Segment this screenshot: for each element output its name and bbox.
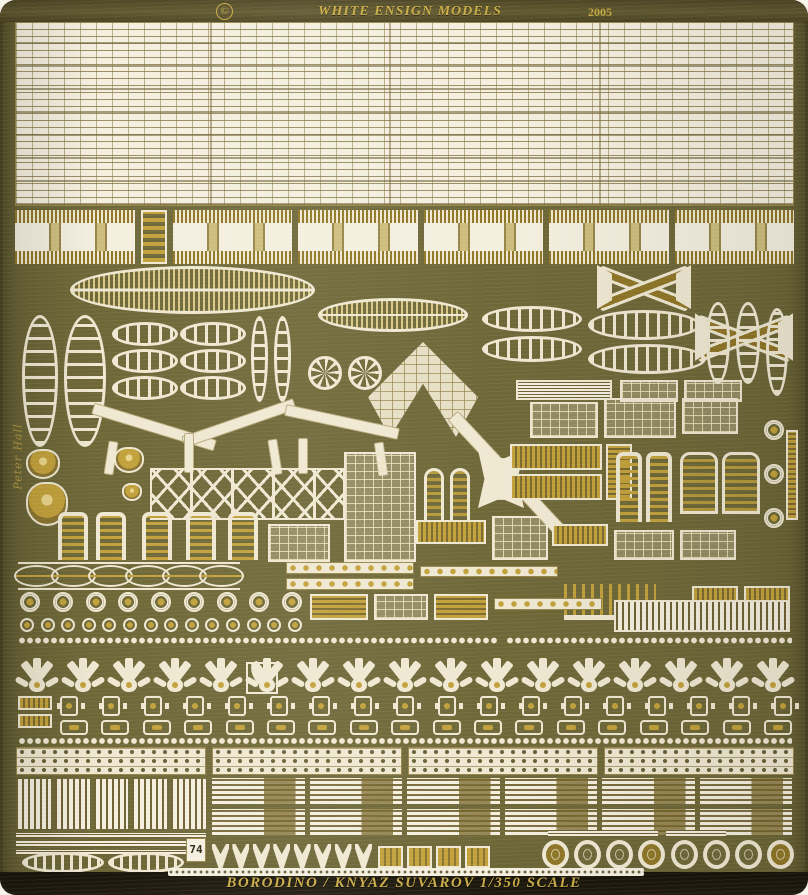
link-part (764, 720, 792, 735)
eyelet-part (288, 618, 302, 632)
bracket-part (232, 844, 249, 868)
link-part (350, 720, 378, 735)
boat-grating-part (112, 349, 178, 373)
rosette-part (249, 592, 269, 612)
clip-part (522, 696, 540, 716)
gold-cell-part (378, 846, 403, 868)
eagle-crest-part (122, 483, 142, 501)
vent-fan-part (384, 650, 426, 692)
walkway-bar (284, 404, 400, 440)
grid-panel-part (680, 530, 736, 560)
gold-ladder-part (616, 452, 642, 522)
link-part (267, 720, 295, 735)
year-label: 2005 (566, 5, 612, 20)
link-part (101, 720, 129, 735)
chain-strip-part (18, 737, 792, 745)
rosette-part (184, 592, 204, 612)
link-part (226, 720, 254, 735)
stanchion-panel-part (16, 779, 51, 829)
rosette-part (151, 592, 171, 612)
riveted-strip-part (420, 566, 558, 577)
clip-part (396, 696, 414, 716)
grating-panel-part (310, 778, 403, 804)
vent-fan-part (108, 650, 150, 692)
vent-fan-part (568, 650, 610, 692)
eyelet-part (267, 618, 281, 632)
boat-grating-part (482, 336, 582, 362)
ladder-strip-row (15, 210, 794, 264)
copyright-icon: © (216, 3, 233, 20)
boat-grating-part (22, 315, 58, 447)
boat-grating-part (251, 316, 268, 402)
vent-fan-part (522, 650, 564, 692)
part-number-block: 74 (186, 838, 206, 862)
gold-grating-part (510, 444, 602, 470)
clip-part (186, 696, 204, 716)
rail-strip-part (548, 830, 658, 837)
railing-mesh-block (15, 22, 794, 206)
bracket-part (335, 844, 352, 868)
clip-part (354, 696, 372, 716)
rail-strip-part (16, 841, 206, 846)
gold-pair-part (18, 696, 52, 710)
eyelet-part (61, 618, 75, 632)
ring-part (767, 840, 794, 869)
grid-panel-part (374, 594, 428, 620)
link-part (308, 720, 336, 735)
mesh-divider (210, 23, 212, 205)
eagle-crest-part (114, 447, 144, 473)
ladder-strip-segment (424, 210, 544, 264)
clip-row (60, 694, 792, 716)
gold-grating-part (434, 594, 488, 620)
riveted-strip-part (286, 578, 414, 590)
boat-grating-part (706, 302, 730, 384)
eyelet-part (82, 618, 96, 632)
ring-part (735, 840, 762, 869)
clip-part (438, 696, 456, 716)
gold-ladder-part (142, 512, 172, 560)
gold-cell-part (436, 846, 461, 868)
clip-part (690, 696, 708, 716)
link-part (640, 720, 668, 735)
perforated-band (16, 747, 794, 775)
davit-part (722, 452, 760, 514)
grating-panel-part (602, 778, 695, 804)
vent-fan-part (338, 650, 380, 692)
ring-part (671, 840, 698, 869)
x-brace-part (598, 262, 690, 312)
grating-panel-part (407, 778, 500, 804)
clip-part (606, 696, 624, 716)
bracket-part (294, 844, 311, 868)
gold-grating-part (310, 594, 368, 620)
perforated-panel-part (16, 747, 206, 775)
boat-grating-part (482, 306, 582, 332)
eyelet-part (185, 618, 199, 632)
ladder-strip-segment (549, 210, 669, 264)
link-part (598, 720, 626, 735)
eyelet-part (144, 618, 158, 632)
ring-row (542, 837, 794, 869)
link-part (515, 720, 543, 735)
bracket-part (355, 844, 372, 868)
slatted-panel-part (614, 600, 790, 632)
eyelet-part (164, 618, 178, 632)
grid-panel-part (604, 398, 676, 438)
riveted-strip-part (494, 598, 602, 610)
chain-strip-part (506, 636, 792, 645)
ring-part (638, 840, 665, 869)
rosette-part (20, 592, 40, 612)
ladder-strip-segment (173, 210, 293, 264)
gold-cell-row (378, 844, 490, 868)
grating-panel-part (212, 778, 305, 804)
link-part (143, 720, 171, 735)
ladder-strip-segment (298, 210, 418, 264)
boat-grating-part (766, 308, 788, 396)
perforated-panel-part (408, 747, 598, 775)
bracket-row (212, 842, 372, 868)
gold-grating-part (552, 524, 608, 546)
vent-fan-part (660, 650, 702, 692)
vent-fan-part (62, 650, 104, 692)
gold-ladder-part (186, 512, 216, 560)
vent-fan-part (614, 650, 656, 692)
boat-grating-part (22, 852, 104, 873)
vent-fan-part (476, 650, 518, 692)
walkway-leg (184, 433, 194, 473)
fret-caption: BORODINO / KNYAZ SUVAROV 1/350 SCALE (226, 875, 581, 892)
walkway-bar (181, 398, 296, 448)
gold-cell-part (465, 846, 490, 868)
eyelet-part (226, 618, 240, 632)
perforated-panel-part (212, 747, 402, 775)
clip-part (312, 696, 330, 716)
davit-part (680, 452, 718, 514)
rail-strip-block (16, 833, 206, 855)
perforation-strip (168, 868, 644, 876)
riveted-strip-part (286, 562, 414, 574)
rosette-part (217, 592, 237, 612)
clip-part (228, 696, 246, 716)
clip-part (144, 696, 162, 716)
stanchion-panel-block (16, 779, 206, 829)
chain-strip-part (18, 636, 498, 645)
vent-fan-part (246, 650, 288, 692)
grid-panel-part (492, 516, 548, 560)
rail-strip-part (666, 830, 726, 837)
eyelet-part (123, 618, 137, 632)
vent-fan-part (430, 650, 472, 692)
bracket-part (273, 844, 290, 868)
vent-fan-part (200, 650, 242, 692)
clip-part (102, 696, 120, 716)
clip-part (732, 696, 750, 716)
rosette-part (282, 592, 302, 612)
spoked-wheel-part (308, 356, 342, 390)
mesh-divider (389, 23, 391, 205)
vent-fan-part (706, 650, 748, 692)
vent-fan-part (752, 650, 794, 692)
photoetch-fret-plate: © WHITE ENSIGN MODELS 2005 Peter Hall (0, 0, 808, 895)
rosette-part (118, 592, 138, 612)
boat-grating-part (180, 322, 246, 346)
vent-fan-row (16, 650, 794, 692)
ring-part (764, 464, 784, 484)
clip-part (270, 696, 288, 716)
ring-part (574, 840, 601, 869)
rosette-row (20, 592, 302, 612)
vent-fan-part (154, 650, 196, 692)
boat-grating-part (588, 310, 700, 340)
clip-part (564, 696, 582, 716)
gold-pair-part (18, 714, 52, 728)
eyelet-row (20, 616, 302, 632)
boat-grating-part (736, 302, 760, 384)
boat-grating-part (588, 344, 706, 374)
mesh-divider (599, 23, 601, 205)
eagle-crest-part (26, 449, 60, 479)
ring-part (764, 420, 784, 440)
clip-part (774, 696, 792, 716)
link-part (433, 720, 461, 735)
rail-strip-part (16, 833, 206, 838)
rosette-part (53, 592, 73, 612)
gold-grating-part (416, 520, 486, 544)
brand-title: WHITE ENSIGN MODELS (300, 4, 520, 20)
gold-etched-tab (141, 210, 167, 264)
rosette-part (86, 592, 106, 612)
spindle-lens (199, 565, 244, 587)
link-part (723, 720, 751, 735)
boat-grating-part (112, 322, 178, 346)
grid-panel-part (268, 524, 330, 562)
grid-panel-part (682, 398, 738, 434)
ring-part (606, 840, 633, 869)
vent-fan-part (292, 650, 334, 692)
link-part (184, 720, 212, 735)
link-part (557, 720, 585, 735)
grating-panel-part (407, 809, 500, 835)
grating-panel-part (505, 778, 598, 804)
link-part (474, 720, 502, 735)
gold-grating-part (510, 474, 602, 500)
gold-ladder-part (58, 512, 88, 560)
perforated-panel-part (604, 747, 794, 775)
etched-signature: Peter Hall (12, 397, 25, 517)
link-row (60, 719, 792, 735)
ladder-strip-segment (675, 210, 795, 264)
ring-part (542, 840, 569, 869)
clip-part (480, 696, 498, 716)
gold-ladder-part (646, 452, 672, 522)
grating-panel-grid (212, 778, 792, 835)
eyelet-part (247, 618, 261, 632)
eyelet-part (102, 618, 116, 632)
grating-panel-part (700, 778, 793, 804)
ring-part (764, 508, 784, 528)
gold-grating-part (786, 430, 798, 520)
eyelet-part (41, 618, 55, 632)
grid-panel-part (530, 402, 598, 438)
slatted-panel-part (516, 380, 612, 400)
vent-fan-part (16, 650, 58, 692)
gold-ladder-part (96, 512, 126, 560)
stanchion-panel-part (171, 779, 206, 829)
gold-ladder-part (228, 512, 258, 560)
boat-grating-part (274, 316, 291, 402)
clip-part (648, 696, 666, 716)
ladder-strip-segment (15, 210, 135, 264)
bracket-part (253, 844, 270, 868)
link-part (60, 720, 88, 735)
grating-panel-part (310, 809, 403, 835)
bracket-part (314, 844, 331, 868)
link-part (681, 720, 709, 735)
stanchion-panel-part (132, 779, 167, 829)
eyelet-part (205, 618, 219, 632)
gold-cell-part (407, 846, 432, 868)
hatched-lens-part (70, 266, 315, 314)
boat-grating-part (180, 349, 246, 373)
grid-panel-part (614, 530, 674, 560)
stanchion-panel-part (94, 779, 129, 829)
hatched-lens-part (318, 298, 468, 332)
eyelet-part (20, 618, 34, 632)
bracket-part (212, 844, 229, 868)
spoked-wheel-part (348, 356, 382, 390)
link-part (391, 720, 419, 735)
grid-panel-part (344, 452, 416, 562)
spindle-strip-part (18, 562, 240, 590)
grating-panel-part (212, 809, 305, 835)
ring-part (703, 840, 730, 869)
stanchion-panel-part (55, 779, 90, 829)
clip-part (60, 696, 78, 716)
